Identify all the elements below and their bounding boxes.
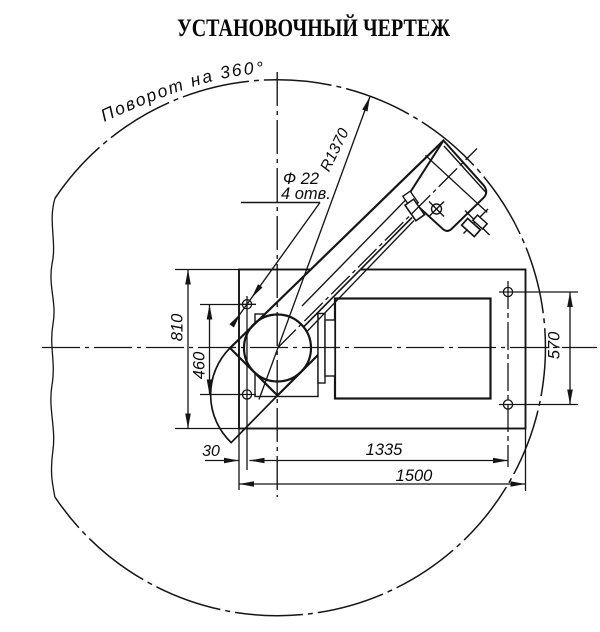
svg-text:УСТАНОВОЧНЫЙ ЧЕРТЕЖ: УСТАНОВОЧНЫЙ ЧЕРТЕЖ — [177, 14, 450, 42]
svg-text:4 отв.: 4 отв. — [281, 185, 331, 203]
svg-text:30: 30 — [202, 443, 220, 460]
svg-text:570: 570 — [546, 331, 564, 359]
svg-text:1335: 1335 — [366, 441, 404, 459]
svg-text:R1370: R1370 — [317, 125, 352, 174]
svg-text:460: 460 — [191, 351, 209, 379]
svg-text:810: 810 — [169, 313, 187, 341]
svg-text:1500: 1500 — [396, 467, 434, 485]
svg-text:Поворот на 360°: Поворот на 360° — [98, 58, 265, 126]
